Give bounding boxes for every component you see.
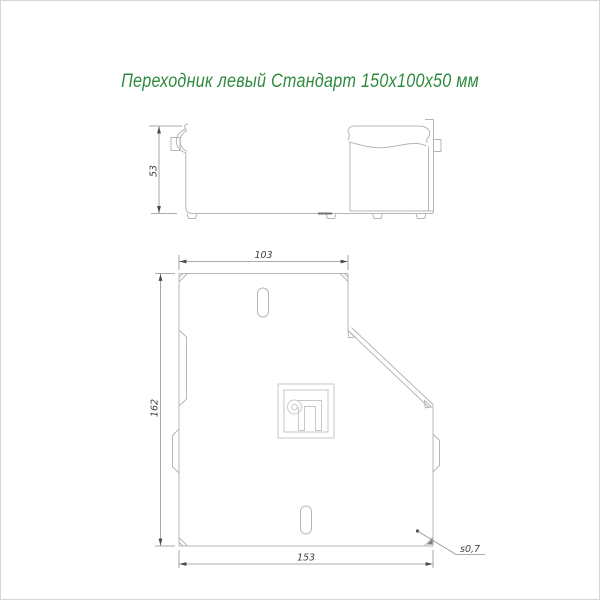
plan-view: 103 162 153 s0,7 <box>150 250 486 568</box>
plan-left-upper-strip <box>179 330 187 406</box>
dim-arrow-down-icon <box>157 206 161 213</box>
plan-right-bump <box>433 434 440 472</box>
plan-left-lower-bump <box>173 429 180 473</box>
side-lip-inner-line <box>180 131 187 152</box>
plan-left-height-dimension: 162 <box>150 274 176 547</box>
side-box-left-roll <box>348 126 354 140</box>
dim-arrow-down-icon <box>159 539 163 546</box>
dim-arrow-right-icon <box>341 260 348 264</box>
logo-loop-inner <box>292 404 298 410</box>
side-box-band-bottom <box>349 142 427 148</box>
logo-loop-outer <box>288 400 302 414</box>
thickness-leader: s0,7 <box>416 529 485 555</box>
side-right-latch-tab <box>434 140 442 152</box>
plan-top-width-value: 103 <box>254 250 272 261</box>
plan-slot-bottom <box>301 506 312 534</box>
side-height-dimension: 53 <box>149 126 183 214</box>
side-box-body <box>350 120 434 214</box>
drawing-sheet: Переходник левый Стандарт 150х100х50 мм <box>0 0 600 600</box>
dim-arrow-up-icon <box>159 274 163 281</box>
plan-bottom-width-dimension: 153 <box>179 550 433 568</box>
manufacturer-logo-icon <box>278 384 334 438</box>
dim-arrow-up-icon <box>157 126 161 133</box>
plan-body-outline <box>179 274 433 547</box>
side-box-top-roll <box>354 126 430 143</box>
side-height-value: 53 <box>149 165 160 177</box>
side-view: 53 <box>149 120 442 219</box>
dim-arrow-right-icon <box>426 562 433 566</box>
plan-outline <box>173 274 440 547</box>
plan-bottom-width-value: 153 <box>297 553 315 564</box>
plan-slot-top <box>258 288 269 317</box>
side-left-wall <box>176 124 433 214</box>
plan-corner-marks <box>179 274 348 547</box>
technical-drawing: 53 <box>1 1 600 600</box>
dim-arrow-left-icon <box>179 562 186 566</box>
dim-arrow-left-icon <box>179 260 186 264</box>
plan-left-height-value: 162 <box>150 399 161 417</box>
side-feet <box>187 214 426 219</box>
logo-outer-frame <box>278 384 334 438</box>
side-profile-outline <box>171 120 441 219</box>
plan-top-width-dimension: 103 <box>179 250 348 270</box>
thickness-value: s0,7 <box>460 544 480 555</box>
